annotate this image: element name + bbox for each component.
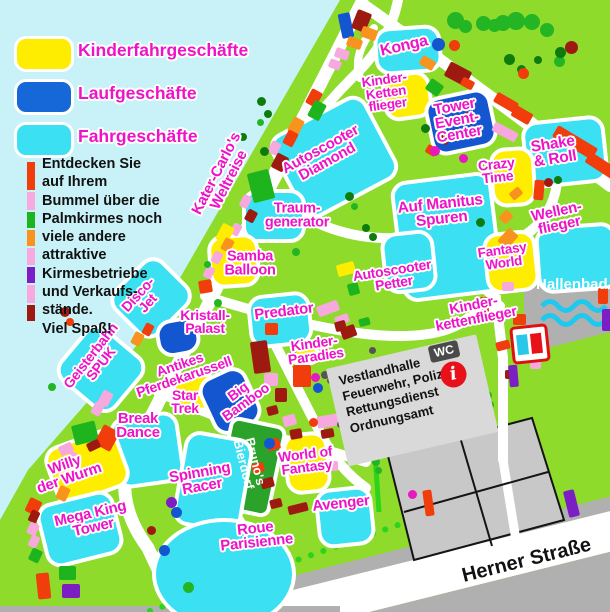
map-dot	[518, 68, 529, 79]
stall	[602, 309, 610, 331]
fahrgeschaefte-swatch	[14, 122, 74, 158]
tree	[555, 47, 566, 58]
logo-sign-red-block	[530, 333, 543, 354]
tree	[264, 110, 272, 118]
tree	[204, 261, 211, 268]
tree	[183, 582, 194, 593]
world-of-fantasy-label: World of Fantasy	[278, 445, 335, 478]
map-dot	[369, 347, 376, 354]
tree	[534, 56, 542, 64]
note-bar-segment	[27, 267, 35, 283]
map-dot	[313, 383, 323, 393]
tree	[369, 233, 377, 241]
stall	[265, 323, 278, 335]
tree	[260, 147, 269, 156]
logo-sign-icon	[509, 323, 551, 365]
stall	[36, 572, 52, 599]
star-trek-label: Star Trek	[171, 389, 199, 415]
legend-label: Laufgeschäfte	[78, 83, 197, 104]
tree	[375, 467, 382, 474]
tree	[362, 224, 370, 232]
tree	[214, 299, 222, 307]
map-dot	[264, 438, 275, 449]
shake-and-roll-label: Shake & Roll	[530, 134, 578, 170]
kinder-kettenflieger-nord-label: Kinder- Ketten flieger	[361, 71, 411, 115]
note-bar-segment	[27, 212, 35, 228]
tree	[351, 203, 358, 210]
break-dance-label: Break Dance	[116, 412, 160, 440]
kinderfahrgeschaefte-swatch	[14, 36, 74, 72]
tree	[459, 20, 472, 33]
traumgenerator-label: Traum- generator	[265, 202, 329, 229]
map-dot	[459, 154, 468, 163]
tower-event-center-label: Tower Event- Center	[431, 96, 483, 146]
tree	[345, 192, 354, 201]
note-bar-segment	[27, 285, 35, 303]
hallenbad-label: Hallenbad	[536, 276, 608, 293]
logo-sign-cyan-block	[516, 334, 529, 355]
tree	[554, 176, 562, 184]
map-dot	[147, 526, 156, 535]
tree	[507, 12, 525, 30]
note-bar-segment	[27, 230, 35, 246]
map-dot	[565, 41, 578, 54]
wc-icon: WC	[428, 340, 461, 363]
tree	[524, 14, 540, 30]
tree	[48, 383, 56, 391]
map-dot	[159, 545, 170, 556]
stall	[59, 566, 76, 580]
tree	[421, 124, 430, 133]
tree	[257, 97, 266, 106]
tree	[504, 54, 515, 65]
note-bar-segment	[27, 248, 35, 265]
tree	[292, 248, 300, 256]
map-dot	[430, 146, 440, 156]
map-dot	[171, 507, 182, 518]
stall	[275, 388, 287, 402]
map-dot	[309, 418, 318, 427]
samba-balloon-label: Samba Balloon	[224, 250, 275, 277]
stall	[289, 428, 303, 440]
note-bar-segment	[27, 192, 35, 210]
map-dot	[408, 490, 417, 499]
map-dot	[311, 373, 320, 382]
stall	[508, 365, 519, 388]
stall	[502, 282, 514, 291]
palmkirmes-map: Herner Straße Kinderfahrgeschäfte Laufge…	[0, 0, 610, 612]
legend-label: Fahrgeschäfte	[78, 126, 198, 147]
map-dot	[432, 38, 445, 51]
note-bar-segment	[27, 162, 35, 190]
map-dot	[544, 178, 553, 187]
stall	[62, 584, 80, 598]
map-dot	[449, 40, 460, 51]
tree	[540, 23, 554, 37]
stall	[293, 365, 311, 387]
laufgeschaefte-swatch	[14, 79, 74, 115]
legend-label: Kinderfahrgeschäfte	[78, 40, 248, 61]
crazy-time-label: Crazy Time	[477, 156, 516, 186]
tree	[257, 119, 264, 126]
stall	[198, 279, 213, 294]
legend-note-text: Entdecken Sie auf Ihrem Bummel über die …	[42, 155, 192, 338]
note-bar-segment	[27, 305, 35, 321]
